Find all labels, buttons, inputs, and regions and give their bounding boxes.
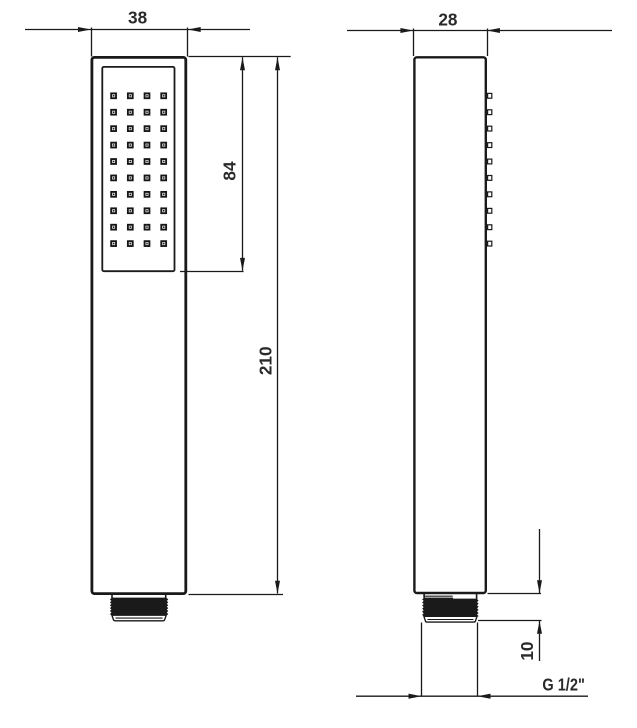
svg-text:28: 28 bbox=[438, 9, 458, 29]
svg-text:210: 210 bbox=[256, 346, 276, 375]
svg-text:84: 84 bbox=[220, 161, 240, 181]
svg-text:38: 38 bbox=[128, 7, 148, 27]
svg-text:10: 10 bbox=[517, 642, 537, 661]
svg-text:G 1/2": G 1/2" bbox=[542, 674, 585, 694]
